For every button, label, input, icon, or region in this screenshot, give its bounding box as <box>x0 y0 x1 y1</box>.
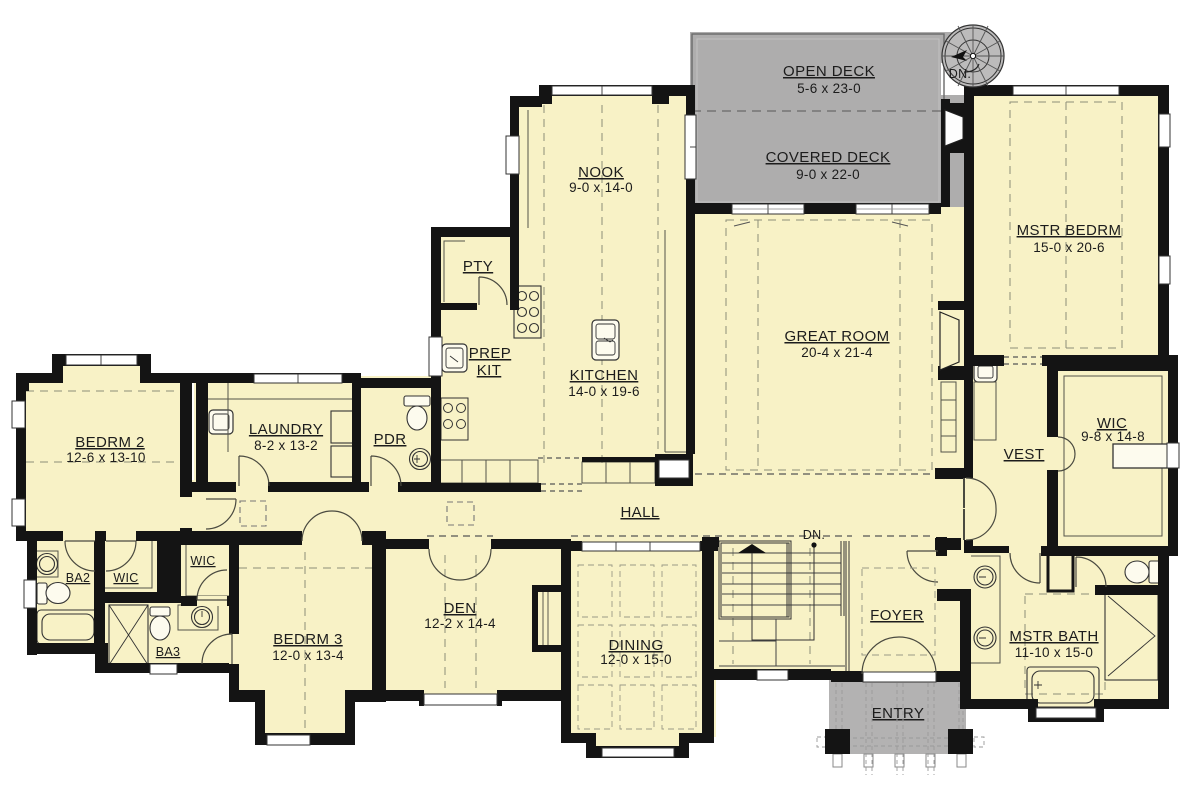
svg-text:9-0 x 14-0: 9-0 x 14-0 <box>569 180 633 195</box>
svg-text:LAUNDRY: LAUNDRY <box>249 421 323 438</box>
svg-text:BA2: BA2 <box>66 571 91 585</box>
svg-text:OPEN DECK: OPEN DECK <box>783 63 875 80</box>
svg-text:BA3: BA3 <box>156 645 181 659</box>
svg-text:MSTR BEDRM: MSTR BEDRM <box>1017 222 1122 239</box>
svg-text:GREAT ROOM: GREAT ROOM <box>784 328 889 345</box>
svg-text:20-4 x 21-4: 20-4 x 21-4 <box>801 345 873 360</box>
svg-text:9-0 x 22-0: 9-0 x 22-0 <box>796 167 860 182</box>
svg-text:BEDRM 3: BEDRM 3 <box>273 631 342 648</box>
svg-text:MSTR BATH: MSTR BATH <box>1009 628 1098 645</box>
svg-text:WIC: WIC <box>190 554 215 568</box>
svg-text:KIT: KIT <box>477 362 502 379</box>
svg-text:12-0 x 13-4: 12-0 x 13-4 <box>272 648 344 663</box>
svg-text:PTY: PTY <box>463 258 493 275</box>
svg-text:DN.: DN. <box>803 528 825 542</box>
svg-text:DN.: DN. <box>949 67 971 81</box>
svg-text:14-0 x 19-6: 14-0 x 19-6 <box>568 384 640 399</box>
svg-text:12-2 x 14-4: 12-2 x 14-4 <box>424 616 496 631</box>
svg-text:NOOK: NOOK <box>578 164 624 181</box>
svg-text:12-6 x 13-10: 12-6 x 13-10 <box>66 450 145 465</box>
svg-text:DEN: DEN <box>444 600 477 617</box>
svg-text:HALL: HALL <box>620 504 659 521</box>
svg-text:11-10 x 15-0: 11-10 x 15-0 <box>1015 645 1093 660</box>
svg-text:9-8 x 14-8: 9-8 x 14-8 <box>1081 429 1145 444</box>
svg-text:KITCHEN: KITCHEN <box>570 367 639 384</box>
svg-text:5-6 x 23-0: 5-6 x 23-0 <box>797 81 861 96</box>
svg-text:ENTRY: ENTRY <box>872 705 925 722</box>
svg-text:COVERED DECK: COVERED DECK <box>766 149 891 166</box>
svg-text:WIC: WIC <box>113 571 138 585</box>
svg-text:8-2 x 13-2: 8-2 x 13-2 <box>254 438 318 453</box>
svg-text:VEST: VEST <box>1004 446 1045 463</box>
svg-text:PDR: PDR <box>374 431 407 448</box>
svg-text:BEDRM 2: BEDRM 2 <box>75 434 144 451</box>
svg-text:PREP: PREP <box>469 345 511 362</box>
svg-text:15-0 x 20-6: 15-0 x 20-6 <box>1033 240 1105 255</box>
svg-text:12-0 x 15-0: 12-0 x 15-0 <box>600 652 672 667</box>
svg-text:FOYER: FOYER <box>870 607 924 624</box>
